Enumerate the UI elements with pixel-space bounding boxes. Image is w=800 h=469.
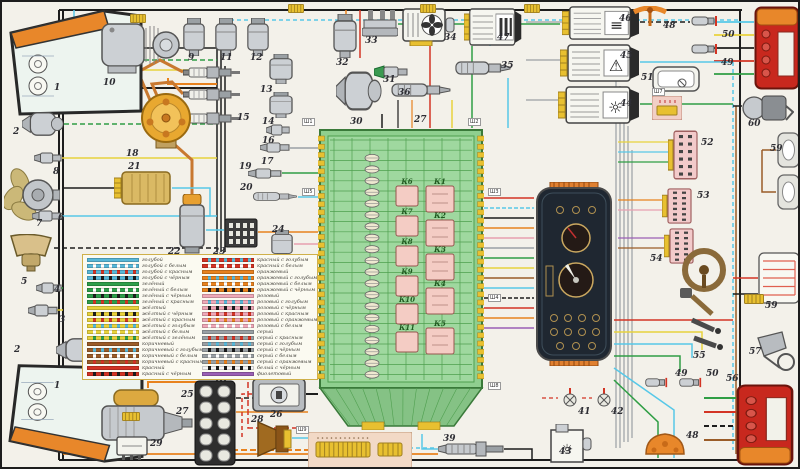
- wire-color-swatch: [202, 312, 254, 317]
- wire-color-swatch: [202, 318, 254, 323]
- wire: [504, 449, 532, 460]
- connector-label: Ш2: [468, 118, 481, 126]
- connector-pinout-diagram: [308, 432, 412, 468]
- wire-color-swatch: [87, 288, 139, 293]
- connector-label: Ш9: [296, 426, 309, 434]
- wire-color-swatch: [202, 336, 254, 341]
- component-number: 48: [663, 22, 676, 31]
- svg-text:К4: К4: [433, 279, 446, 288]
- solenoid-11: [214, 18, 238, 56]
- ignition-module-icon: [114, 170, 172, 206]
- horn-icon: [8, 234, 54, 272]
- central-fuse-relay-block: К6К7К8К9К10К11 К1К2К3К4К5: [318, 128, 484, 430]
- lamp-49: [690, 42, 718, 56]
- sensor-icon: [28, 304, 58, 317]
- component-number: 16: [262, 137, 275, 146]
- connector-53: [662, 188, 692, 224]
- wiring-diagram-canvas: К6К7К8К9К10К11 К1К2К3К4К5 ≡ ⚠ ☼ ☼ голубо…: [0, 0, 800, 469]
- component-number: 32: [336, 59, 349, 68]
- bulb-icon: [560, 388, 580, 410]
- switch-45: ⚠: [560, 44, 640, 82]
- sensor-icon: [34, 152, 62, 164]
- component-number: 1: [54, 382, 60, 391]
- component-number: 29: [150, 440, 163, 449]
- component-number: 17: [261, 158, 274, 167]
- connector-label: Ш1: [302, 118, 315, 126]
- lamp-41: [560, 388, 580, 410]
- wire-color-swatch: [202, 330, 254, 335]
- lamp-icon: [644, 376, 668, 389]
- switch-47: [464, 8, 522, 46]
- component-number: 14: [262, 118, 275, 127]
- legend-row: красный с чёрным: [85, 371, 200, 377]
- comb-a: [288, 4, 304, 13]
- spark-plug-icon: [183, 66, 241, 79]
- spark-plug-1: [183, 66, 241, 79]
- connector-comb-icon: [524, 4, 540, 13]
- wire-color-swatch: [202, 360, 254, 365]
- connector-label: Ш3: [488, 188, 501, 196]
- instrument-cluster: [534, 182, 614, 366]
- small-motor-icon: [22, 110, 64, 138]
- ignition-coil-22: [178, 194, 206, 254]
- relay-29: [116, 436, 148, 460]
- connector-comb-icon: [122, 412, 140, 421]
- lamp-box-43: ☼: [550, 424, 592, 464]
- door-lamp-icon: [776, 174, 800, 210]
- solenoid-icon: [246, 18, 270, 56]
- fuse-relay-block-icon: К6К7К8К9К10К11 К1К2К3К4К5: [318, 128, 484, 430]
- component-number: 53: [697, 192, 710, 201]
- connector-23: [224, 218, 258, 248]
- column-switches-55: [688, 316, 726, 352]
- comb-c: [524, 4, 540, 13]
- component-number: 27: [176, 408, 189, 417]
- component-number: 7: [36, 220, 42, 229]
- wire-color-swatch: [202, 288, 254, 293]
- lamp-icon: [690, 14, 718, 28]
- component-number: 33: [365, 37, 378, 46]
- connector-comb-icon: [130, 14, 146, 23]
- relay-icon: [116, 436, 148, 460]
- wire-color-swatch: [202, 366, 254, 371]
- component-number: 34: [444, 34, 457, 43]
- connector-small-sh7: [652, 96, 682, 120]
- connector-label: Ш7: [652, 88, 665, 96]
- lamp-50: [690, 14, 718, 28]
- component-number: 49: [675, 370, 688, 379]
- ignition-switch-icon: [252, 378, 306, 412]
- comb-d: [130, 14, 146, 23]
- component-number: 3: [59, 316, 65, 325]
- wire-color-swatch: [202, 258, 254, 263]
- component-number: 51: [641, 74, 654, 83]
- wire-color-swatch: [202, 276, 254, 281]
- component-number: 57: [749, 348, 762, 357]
- sensor-icon: [252, 190, 298, 203]
- svg-text:К5: К5: [433, 319, 446, 328]
- tail-light-icon: [736, 384, 794, 466]
- wire-color-swatch: [87, 342, 139, 347]
- sensor-20: [252, 190, 298, 203]
- connector-label: Ш8: [488, 382, 501, 390]
- component-number: 6: [58, 214, 64, 223]
- wire-color-swatch: [202, 306, 254, 311]
- connector-pinout-icon: [308, 432, 412, 468]
- wire-color-swatch: [202, 354, 254, 359]
- wire-color-swatch: [87, 258, 139, 263]
- wire-color-swatch: [202, 270, 254, 275]
- legend-row: фиолетовый: [200, 371, 315, 377]
- component-number: 20: [240, 184, 253, 193]
- wire-color-swatch: [202, 372, 254, 377]
- tail-light-right-bottom: [736, 384, 794, 466]
- connector-label: Ш4: [488, 294, 501, 302]
- ignition-coil-icon: [178, 194, 206, 254]
- wire-color-label: красный с чёрным: [142, 371, 191, 377]
- connector-comb-icon: [420, 4, 436, 13]
- wire-color-swatch: [87, 348, 139, 353]
- component-number: 41: [578, 408, 591, 417]
- component-number: 1: [54, 84, 60, 93]
- svg-text:К9: К9: [400, 267, 412, 276]
- component-number: 50: [722, 31, 735, 40]
- component-number: 28: [251, 416, 264, 425]
- component-number: 47: [497, 34, 510, 43]
- steering-wheel-icon: [678, 248, 726, 318]
- wire-color-swatch: [202, 348, 254, 353]
- wire-color-label: фиолетовый: [257, 371, 291, 377]
- component-number: 19: [239, 163, 252, 172]
- wire-color-swatch: [87, 270, 139, 275]
- component-number: 48: [686, 432, 699, 441]
- wire-color-swatch: [202, 324, 254, 329]
- component-14: [268, 92, 294, 118]
- wire-color-swatch: [87, 282, 139, 287]
- svg-text:К8: К8: [400, 237, 412, 246]
- component-number: 49: [721, 59, 734, 68]
- washer-motor-top: [22, 110, 64, 138]
- solenoid-icon: [182, 18, 206, 56]
- sensor-19: [248, 168, 282, 179]
- component-number: 60: [748, 120, 761, 129]
- tail-light-icon: [754, 6, 800, 90]
- instrument-cluster-icon: [534, 182, 614, 366]
- component-48b: [642, 430, 688, 458]
- connector-label: Ш5: [302, 188, 315, 196]
- component-number: 4: [54, 286, 60, 295]
- resistor-icon: [362, 10, 398, 38]
- component-number: 59: [770, 145, 783, 154]
- defroster-grid-icon: [758, 252, 800, 304]
- component-number: 36: [398, 89, 411, 98]
- sensor-8: [34, 152, 62, 164]
- solenoid-icon: [268, 92, 294, 118]
- wire-color-swatch: [202, 294, 254, 299]
- wire-color-legend: голубойголубой с белымголубой с краснымг…: [82, 254, 318, 380]
- wire-color-swatch: [202, 282, 254, 287]
- solenoid-32: [332, 14, 358, 58]
- svg-text:К6: К6: [400, 177, 412, 186]
- wire-color-swatch: [202, 342, 254, 347]
- component-number: 10: [103, 79, 116, 88]
- lamp-icon: [690, 42, 718, 56]
- component-number: 12: [250, 54, 263, 63]
- lamp-box-icon: ☼: [550, 424, 592, 464]
- component-number: 56: [726, 375, 739, 384]
- ignition-module-21: [114, 170, 172, 206]
- solenoid-icon: [268, 54, 294, 84]
- component-number: 31: [383, 76, 396, 85]
- wire-color-swatch: [87, 330, 139, 335]
- fuse-block-icon: [194, 380, 236, 466]
- component-number: 25: [181, 391, 194, 400]
- component-number: 35: [501, 62, 514, 71]
- svg-text:К3: К3: [433, 245, 446, 254]
- component-number: 26: [270, 411, 283, 420]
- connector-grid-icon: [224, 218, 258, 248]
- solenoid-icon: [214, 18, 238, 56]
- wire-color-swatch: [87, 300, 139, 305]
- solenoid-12: [246, 18, 270, 56]
- component-number: 18: [126, 150, 139, 159]
- component-number: 2: [14, 346, 20, 355]
- solenoid-9: [182, 18, 206, 56]
- column-switch-icon: [688, 316, 726, 352]
- connector-icon: [652, 96, 682, 120]
- svg-text:К2: К2: [433, 211, 446, 220]
- solenoid-icon: [332, 14, 358, 58]
- component-13: [268, 54, 294, 84]
- connector-block-icon: [662, 188, 692, 224]
- component-number: 46: [619, 15, 632, 24]
- distributor-cap-icon: [642, 430, 688, 458]
- door-lamp-59b: [776, 174, 800, 210]
- auxiliary-fuse-block: [194, 380, 236, 466]
- wire-color-swatch: [87, 324, 139, 329]
- rear-window-defroster: [758, 252, 800, 304]
- wire-color-swatch: [202, 264, 254, 269]
- component-number: 11: [220, 54, 233, 63]
- ignition-distributor: [136, 92, 196, 150]
- component-number: 9: [188, 54, 194, 63]
- connector-59-comb: [744, 294, 764, 304]
- component-number: 8: [53, 168, 59, 177]
- component-number: 24: [272, 226, 285, 235]
- comb-b: [420, 4, 436, 13]
- wire-color-swatch: [87, 312, 139, 317]
- ignition-switch-26: [252, 378, 306, 412]
- wire-color-swatch: [87, 276, 139, 281]
- switch-block-icon: [464, 8, 522, 46]
- component-number: 59: [765, 302, 778, 311]
- connector-comb-icon: [744, 294, 764, 304]
- component-number: 44: [620, 100, 633, 109]
- switch-block-icon: ⚠: [560, 44, 640, 82]
- wire-color-swatch: [87, 318, 139, 323]
- connector-block-icon: [668, 130, 698, 180]
- component-number: 15: [237, 114, 250, 123]
- wire-color-swatch: [87, 264, 139, 269]
- component-number: 5: [21, 278, 27, 287]
- component-number: 50: [706, 370, 719, 379]
- component-number: 21: [128, 163, 141, 172]
- wire-color-swatch: [87, 372, 139, 377]
- component-number: 27: [414, 116, 427, 125]
- connector-52: [668, 130, 698, 180]
- wire-color-swatch: [87, 336, 139, 341]
- svg-text:К10: К10: [398, 295, 415, 304]
- wire: [422, 434, 438, 449]
- component-number: 45: [620, 52, 633, 61]
- legend-column-right: красный с голубымкрасный с белыморанжевы…: [200, 257, 315, 377]
- wire: [174, 144, 192, 194]
- wire: [762, 150, 776, 192]
- component-number: 55: [693, 352, 706, 361]
- svg-text:К7: К7: [400, 207, 412, 216]
- steering-column: [678, 248, 726, 318]
- wire-color-swatch: [87, 354, 139, 359]
- comb-starter: [122, 412, 140, 421]
- component-number: 13: [260, 86, 273, 95]
- connector-comb-icon: [288, 4, 304, 13]
- wire-color-swatch: [87, 294, 139, 299]
- sensor-3: [28, 304, 58, 317]
- horn: [8, 234, 54, 272]
- svg-text:К1: К1: [433, 177, 446, 186]
- sensor-icon: [248, 168, 282, 179]
- wire-color-swatch: [202, 300, 254, 305]
- component-number: 54: [650, 255, 663, 264]
- svg-text:К11: К11: [398, 323, 415, 332]
- component-number: 42: [611, 408, 624, 417]
- component-number: 2: [13, 128, 19, 137]
- wire-color-swatch: [87, 366, 139, 371]
- legend-column-left: голубойголубой с белымголубой с краснымг…: [85, 257, 200, 377]
- component-number: 52: [701, 139, 714, 148]
- component-number: 39: [443, 435, 456, 444]
- component-number: 43: [559, 448, 572, 457]
- component-number: 30: [350, 118, 363, 127]
- wire-color-swatch: [87, 360, 139, 365]
- resistor-33: [362, 10, 398, 38]
- distributor-icon: [136, 92, 196, 150]
- wire-color-swatch: [87, 306, 139, 311]
- tail-light-right-top: [754, 6, 800, 90]
- lighter-49b: [644, 376, 668, 389]
